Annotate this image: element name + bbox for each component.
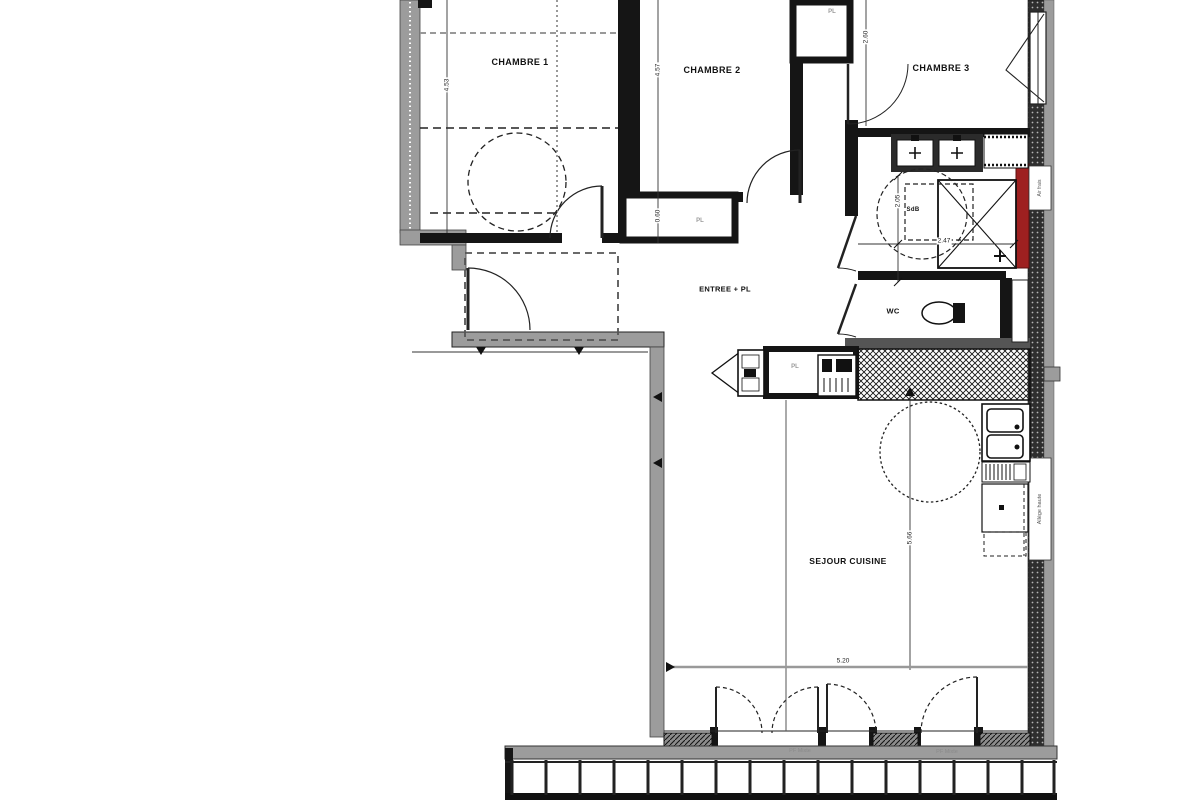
- dim-bathroom-width: 2.47: [937, 238, 952, 245]
- plan-geometry: [0, 0, 1200, 800]
- balcony: [505, 746, 1057, 800]
- dim-sejour-width: 5.20: [836, 658, 851, 665]
- chambre2-label: CHAMBRE 2: [683, 65, 740, 75]
- dim-sejour-depth: 5.66: [907, 531, 914, 546]
- bathroom-shelf: [984, 134, 1028, 168]
- chambre3-label: CHAMBRE 3: [912, 63, 969, 73]
- dim-chambre3: 2.60: [863, 30, 870, 45]
- closet-kitchen-label: PL: [791, 364, 799, 370]
- pipe-stub: [1044, 367, 1060, 381]
- kitchen-duct-wall: [845, 338, 1030, 349]
- chambre1-guides: [420, 0, 618, 233]
- vent-red-strip: [1016, 164, 1029, 268]
- toilet: [922, 302, 965, 324]
- dim-closet-hall: 0.60: [655, 209, 662, 224]
- kitchen-base-unit: [982, 484, 1028, 556]
- window-chambre3: [1006, 12, 1046, 104]
- dim-chambre2: 4.57: [655, 63, 662, 78]
- dim-bathroom-depth: 2.05: [895, 194, 902, 209]
- kitchen-counter: [858, 349, 1030, 400]
- kitchen-sink: [982, 404, 1030, 461]
- entree-label: ENTREE + PL: [699, 285, 751, 294]
- sdb-label: SdB: [907, 207, 920, 213]
- bathroom-sinks: [891, 134, 983, 172]
- dim-chambre1: 4.53: [444, 78, 451, 93]
- window-low-label: Allège haute: [1037, 494, 1043, 525]
- vent-label: Air frais: [1037, 180, 1043, 197]
- sejour-label: SEJOUR CUISINE: [809, 556, 886, 566]
- closet-top: [793, 2, 850, 60]
- kitchen-drainer: [982, 462, 1030, 482]
- closet-hall: [623, 195, 735, 240]
- hall-closet-outline: [465, 253, 618, 340]
- door-label-left: PF Mixte: [789, 748, 811, 754]
- wc-duct: [1012, 280, 1028, 342]
- turning-circle-sejour: [880, 402, 980, 502]
- closet-hall-label: PL: [696, 218, 704, 224]
- wc-label: WC: [886, 307, 899, 316]
- closet-top-label: PL: [828, 9, 836, 15]
- door-label-right: PF Mixte: [936, 749, 958, 755]
- chambre1-label: CHAMBRE 1: [491, 57, 548, 67]
- shower: [938, 180, 1016, 268]
- floor-plan: CHAMBRE 1 CHAMBRE 2 CHAMBRE 3 ENTREE + P…: [0, 0, 1200, 800]
- balcony-doors: [664, 677, 1030, 733]
